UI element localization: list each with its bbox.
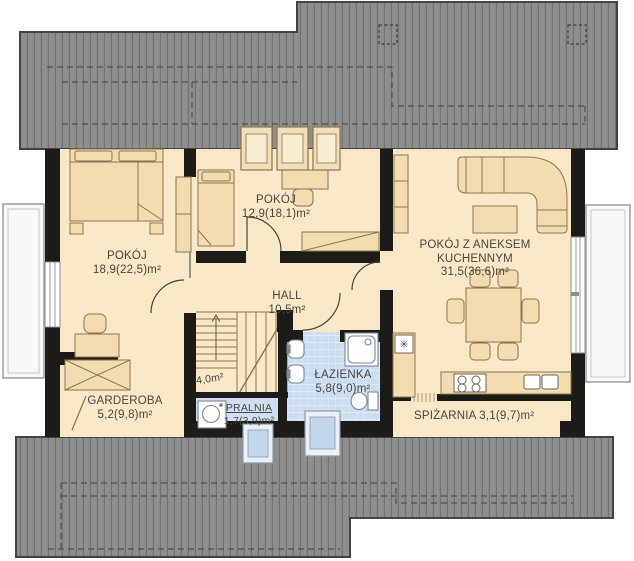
dining-table [466, 288, 521, 342]
balcony-right [586, 205, 630, 382]
floor-plan: ✳ [0, 0, 634, 561]
room-area: 10,5m² [237, 304, 337, 318]
roof-window-icon [277, 127, 308, 170]
wall [45, 149, 60, 262]
room-area: 5,2(9,8)m² [50, 409, 200, 423]
room-name: GARDEROBA [50, 395, 200, 409]
room-name: ŁAZIENKA [293, 369, 393, 383]
wall [196, 251, 246, 263]
room-label-salon: POKÓJ Z ANEKSEM KUCHENNYM 31,5(36,6)m² [397, 239, 553, 280]
room-label-pokoj2: POKÓJ 12,9(18,1)m² [201, 194, 351, 221]
wall [280, 251, 380, 263]
room-label-spizarnia: SPIŻARNIA 3,1(9,7)m² [414, 410, 584, 424]
skylight-icon [243, 424, 273, 463]
wall [184, 149, 196, 177]
chair [84, 314, 106, 333]
nightstand [70, 223, 83, 234]
double-bed [70, 149, 163, 221]
wall [380, 149, 393, 251]
room-area: 5,8(9,0)m² [293, 383, 393, 397]
room-name: KUCHENNYM [397, 253, 553, 267]
wall [278, 330, 287, 437]
room-area: 18,9(22,5)m² [52, 264, 202, 278]
room-label-garderoba: GARDEROBA 5,2(9,8)m² [50, 395, 200, 422]
chair [498, 343, 518, 360]
floor-plan-drawing: ✳ [0, 0, 634, 561]
wall [196, 392, 288, 398]
room-name: POKÓJ [201, 194, 351, 208]
wall [380, 290, 393, 437]
balcony-left [3, 204, 44, 378]
skylight-icon [305, 411, 340, 456]
chair [470, 343, 490, 360]
desk [282, 170, 328, 189]
roof-window-icon [313, 127, 340, 170]
wardrobe [302, 232, 379, 251]
room-area: 1,7(3,9)m² [220, 415, 278, 428]
sink-icon [287, 340, 304, 358]
room-area: 12,9(18,1)m² [201, 208, 351, 222]
fridge-snowflake-icon: ✳ [399, 339, 408, 351]
room-name: HALL [237, 290, 337, 304]
room-label-pokoj1: POKÓJ 18,9(22,5)m² [52, 250, 202, 277]
chair [447, 299, 464, 323]
shower-icon [345, 333, 378, 366]
room-name: POKÓJ [52, 250, 202, 264]
room-area: 3,1(9,7)m² [479, 410, 534, 422]
window-right [571, 237, 585, 353]
room-name: POKÓJ Z ANEKSEM [397, 239, 553, 253]
roof-windows-top [241, 127, 340, 170]
room-label-lazienka: ŁAZIENKA 5,8(9,0)m² [293, 369, 393, 396]
roof-window-icon [241, 127, 272, 170]
room-label-hall: HALL 10,5m² [237, 290, 337, 317]
chair [522, 299, 539, 323]
shelf-cabinet [394, 155, 408, 233]
desk [75, 334, 119, 357]
room-label-pralnia: PRALNIA 1,7(3,9)m² [220, 402, 278, 427]
room-area: 31,5(36,6)m² [397, 266, 553, 280]
room-name: PRALNIA [220, 402, 278, 415]
stove-icon [454, 374, 486, 392]
wardrobe [176, 177, 191, 252]
coffee-table [473, 206, 517, 233]
nightstand [150, 223, 163, 234]
closet-rack [65, 360, 130, 390]
room-name: SPIŻARNIA [414, 410, 476, 422]
wall [571, 149, 585, 237]
